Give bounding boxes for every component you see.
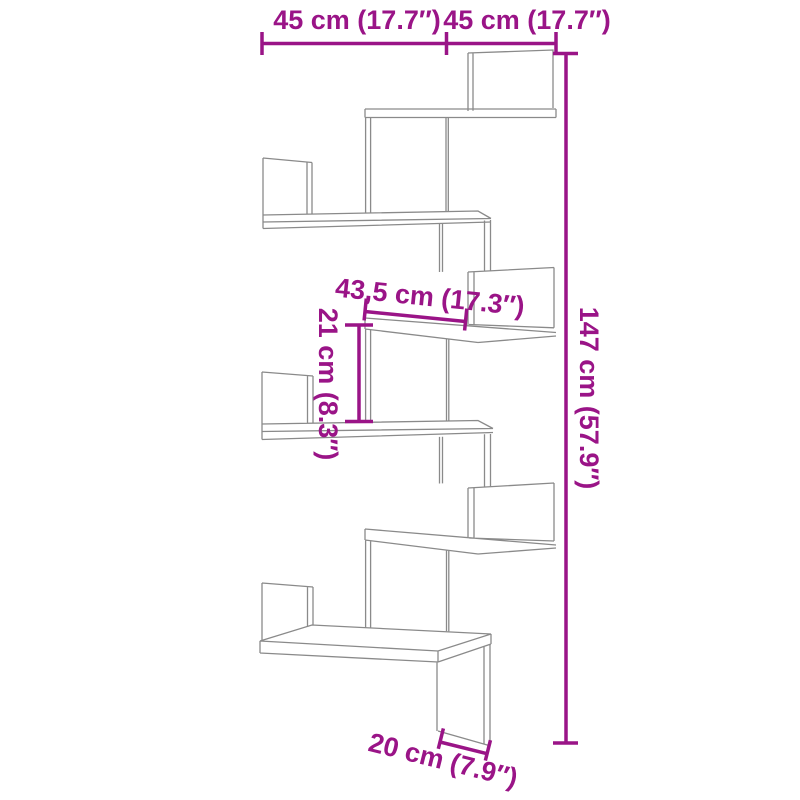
dim-label-bottom-depth: 20 cm (7.9″) [366, 727, 521, 793]
dimension-labels: 45 cm (17.7″) 45 cm (17.7″) 43,5 cm (17.… [273, 5, 611, 793]
diagram-canvas: 45 cm (17.7″) 45 cm (17.7″) 43,5 cm (17.… [0, 0, 800, 800]
corner-shelf-drawing [260, 50, 556, 746]
dimension-lines [262, 32, 578, 761]
shelf-drawing-top-unit [263, 50, 556, 229]
dim-line-shelf-gap [345, 325, 373, 422]
dim-label-shelf-width: 43,5 cm (17.3″) [334, 273, 526, 322]
product-dimension-diagram: 45 cm (17.7″) 45 cm (17.7″) 43,5 cm (17.… [0, 0, 800, 800]
shelf-drawing-second-unit [262, 220, 556, 440]
dim-label-top-width-right: 45 cm (17.7″) [443, 5, 611, 35]
dim-label-shelf-gap-height: 21 cm (8.3″) [313, 308, 343, 461]
dim-label-overall-height: 147 cm (57.9″) [574, 307, 604, 490]
shelf-drawing-third-unit [262, 434, 556, 642]
dim-label-top-width-left: 45 cm (17.7″) [273, 5, 441, 35]
